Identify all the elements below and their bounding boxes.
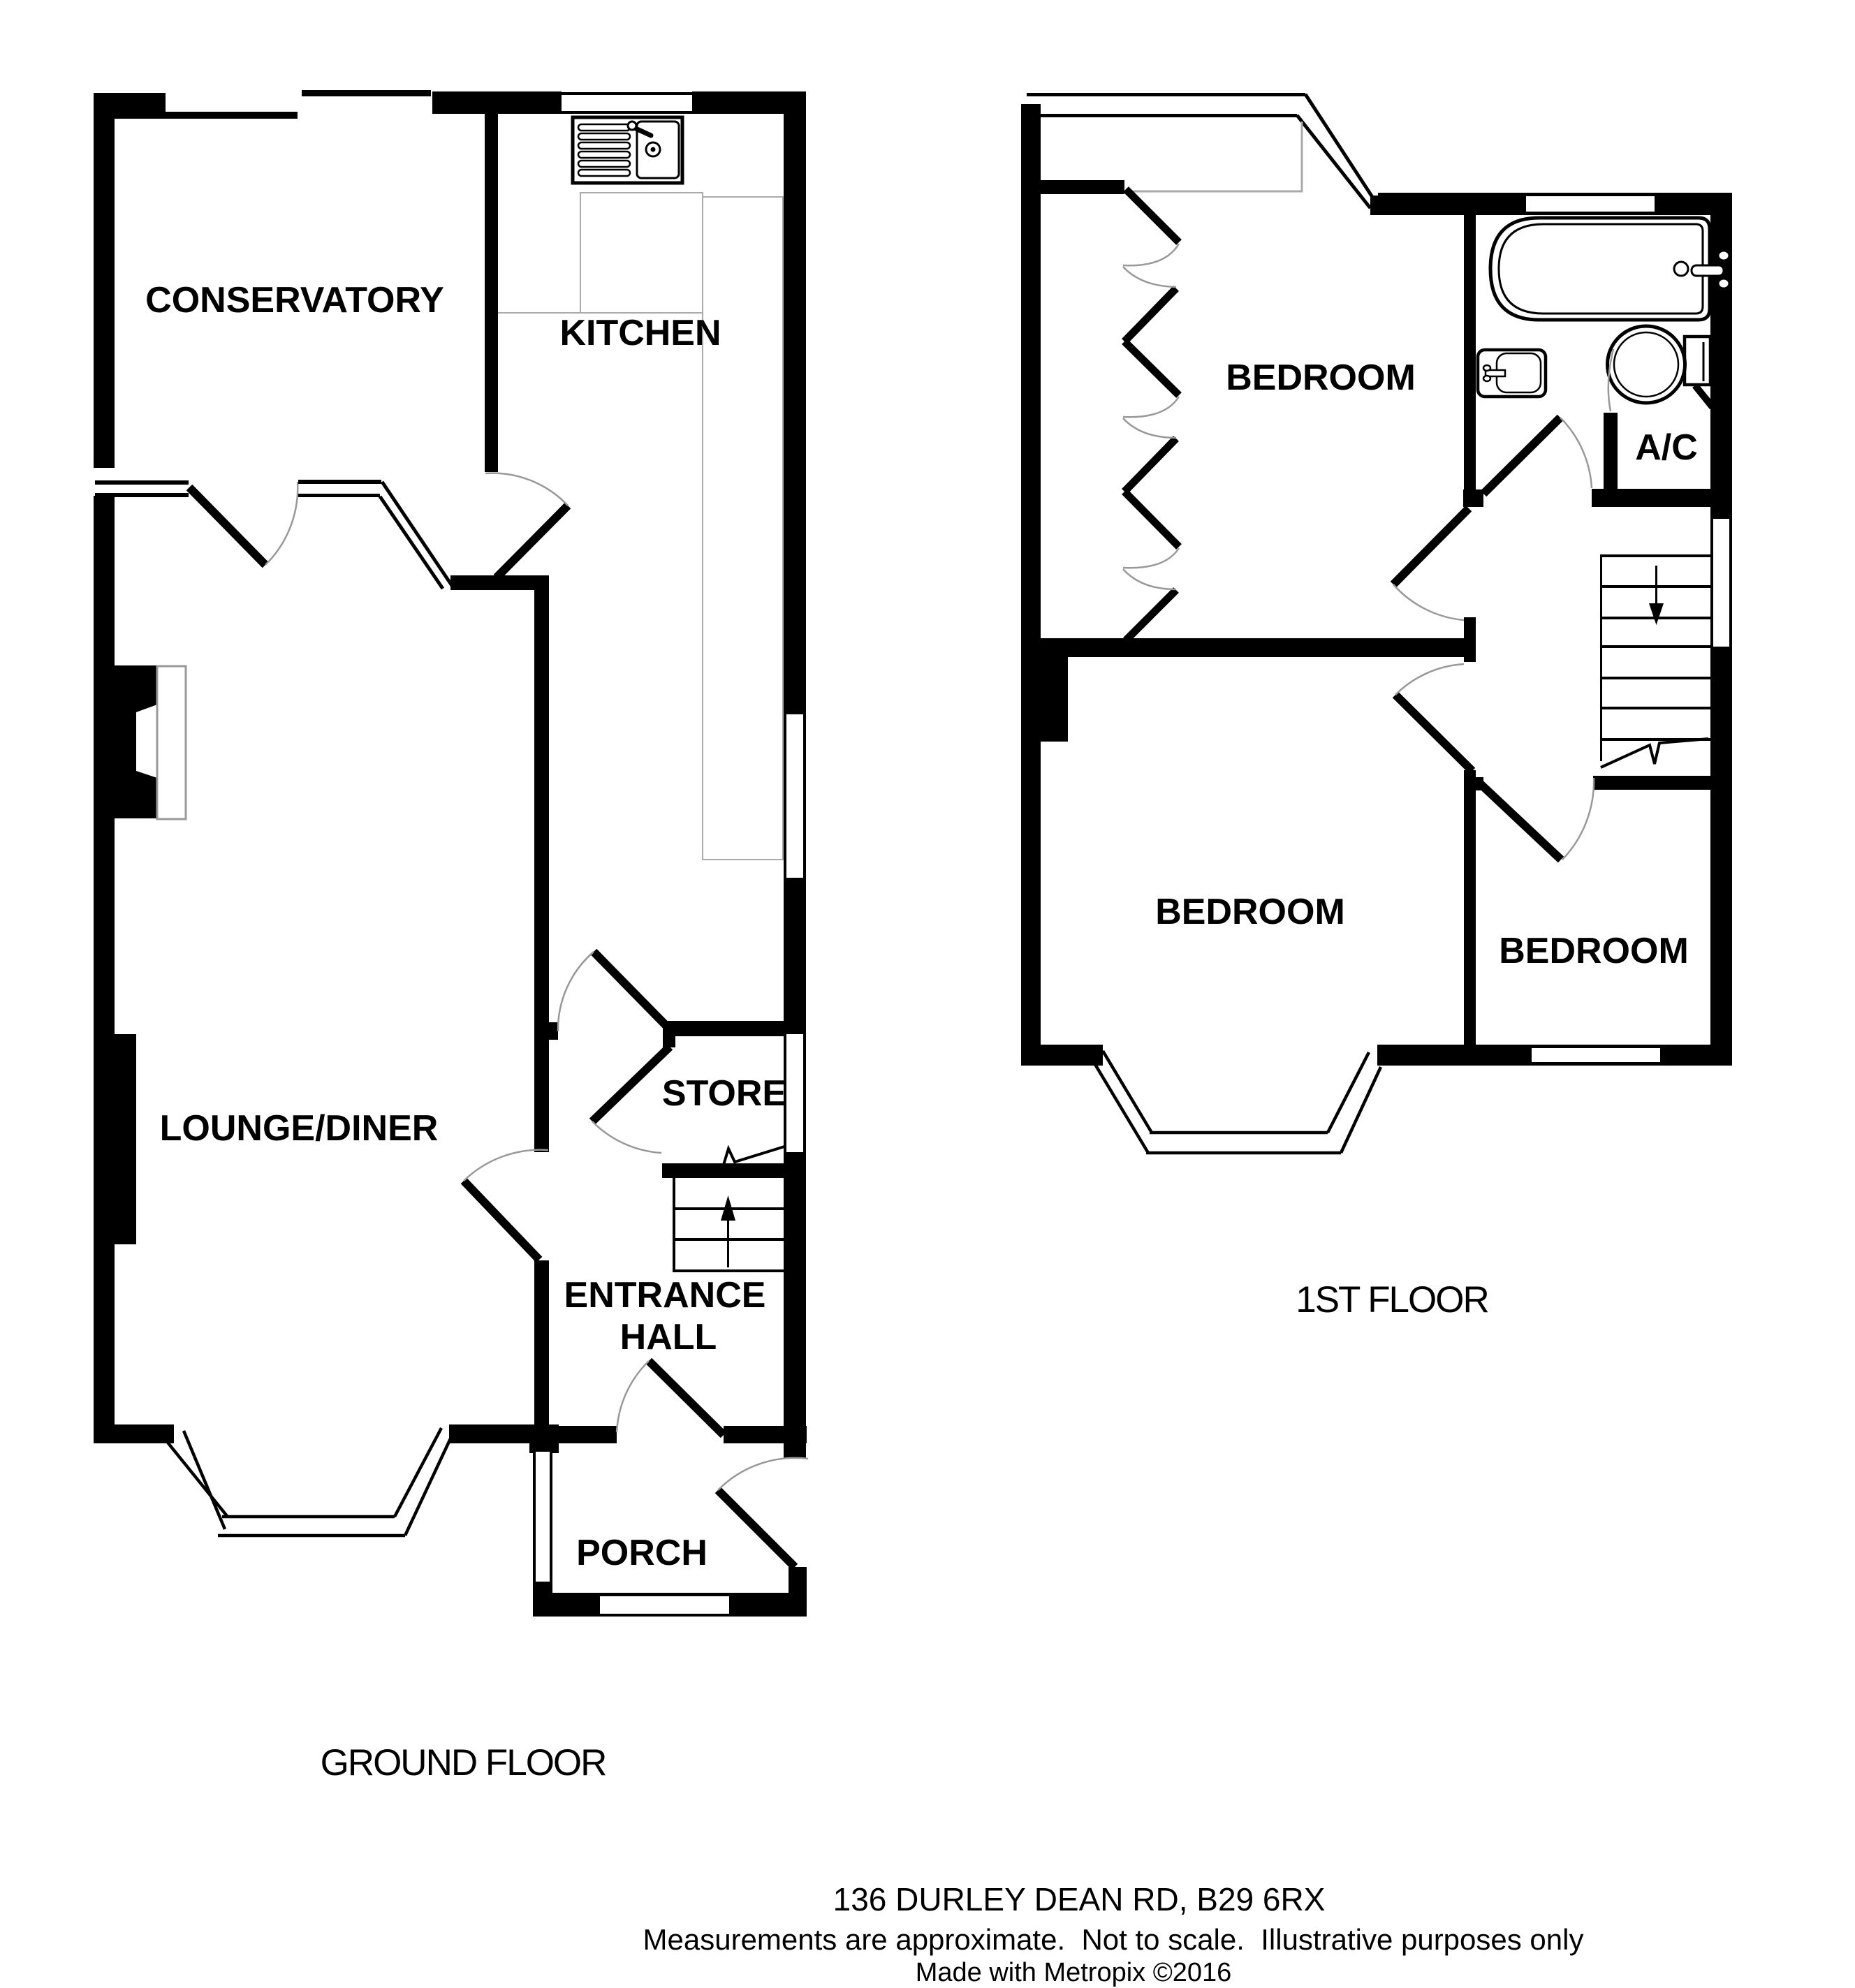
svg-text:BEDROOM: BEDROOM [1226,358,1416,398]
svg-text:Made with Metropix ©2016: Made with Metropix ©2016 [916,1958,1232,1987]
svg-text:KITCHEN: KITCHEN [559,313,721,353]
svg-text:1ST FLOOR: 1ST FLOOR [1296,1279,1488,1320]
svg-text:BEDROOM: BEDROOM [1155,892,1345,932]
svg-text:Measurements are approximate.: Measurements are approximate. Not to sca… [643,1923,1584,1956]
svg-text:GROUND FLOOR: GROUND FLOOR [321,1742,606,1783]
svg-text:A/C: A/C [1635,427,1698,468]
svg-text:ENTRANCE: ENTRANCE [564,1275,766,1316]
svg-text:BEDROOM: BEDROOM [1499,931,1689,971]
svg-text:PORCH: PORCH [576,1533,707,1573]
svg-text:CONSERVATORY: CONSERVATORY [145,280,444,321]
svg-text:136 DURLEY DEAN RD, B29 6RX: 136 DURLEY DEAN RD, B29 6RX [833,1881,1326,1917]
svg-text:STORE: STORE [662,1073,786,1114]
svg-text:LOUNGE/DINER: LOUNGE/DINER [160,1108,439,1149]
svg-text:HALL: HALL [620,1317,717,1357]
